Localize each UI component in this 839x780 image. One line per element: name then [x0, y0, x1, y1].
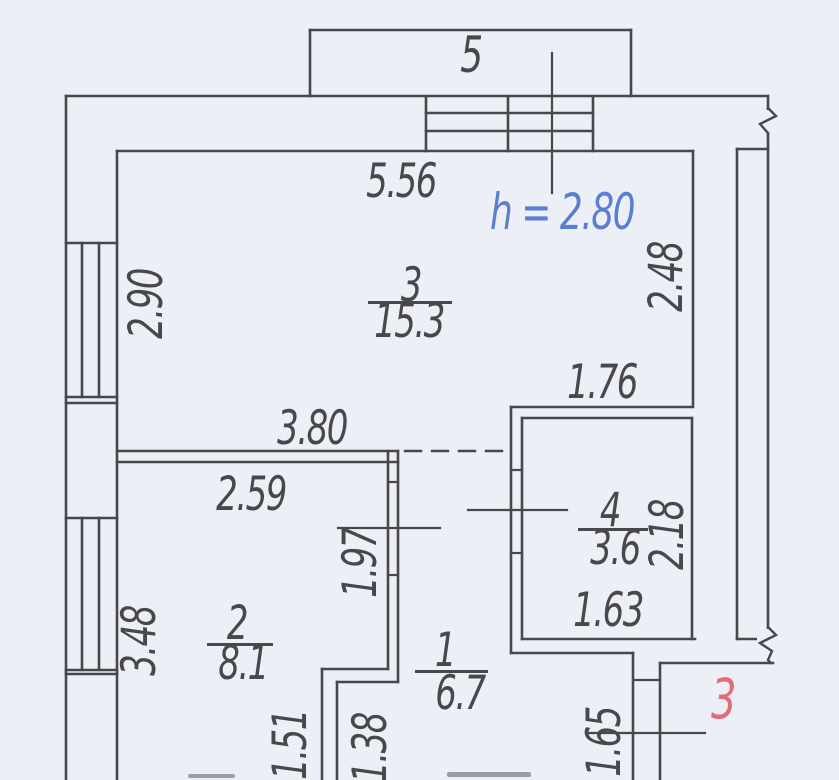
room1-area: 6.7	[435, 671, 485, 718]
window-left-upper	[66, 243, 117, 403]
dim-left-window-lower: 3.48	[117, 606, 164, 676]
dim-left-window-upper: 2.90	[124, 269, 171, 339]
clipped-text-remnant	[188, 774, 235, 778]
window-left-lower	[66, 518, 117, 674]
dim-room3-bottom-width: 3.80	[277, 406, 347, 453]
dim-room3-right-height: 2.48	[644, 242, 691, 312]
balcony-label: 5	[460, 32, 481, 82]
dim-room4-right-height: 2.18	[645, 500, 692, 570]
dim-room4-bottom-width: 1.63	[573, 588, 643, 635]
door-room4	[468, 470, 567, 553]
dim-entrance-wall: 1.65	[582, 707, 629, 777]
interior-walls	[117, 151, 693, 780]
dim-corridor-lower: 1.38	[348, 713, 395, 780]
window-top	[426, 97, 593, 151]
ceiling-height-note: h = 2.80	[490, 189, 634, 239]
dim-room2-top-width: 2.59	[216, 472, 286, 519]
dim-corridor-door-height: 1.97	[338, 528, 385, 598]
floor-plan: 5 h = 2.80 3 3 15.3 2 8.1 1 6.7 4 3.6 5.…	[0, 0, 839, 780]
room3-area: 15.3	[374, 299, 444, 346]
room2-area: 8.1	[218, 641, 268, 688]
entrance-label: 3	[711, 672, 735, 727]
dim-top-wall-width: 5.56	[366, 159, 436, 206]
dim-room2-lower-right: 1.51	[268, 710, 315, 780]
room4-area: 3.6	[590, 526, 640, 573]
clipped-text-remnant	[447, 772, 531, 777]
dim-room4-top-width: 1.76	[567, 360, 637, 407]
